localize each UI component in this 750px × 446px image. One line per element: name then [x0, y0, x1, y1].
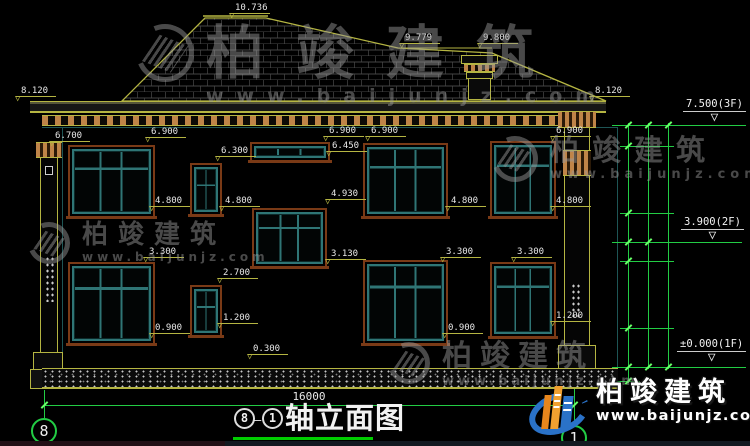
elevation-value: 0.300 — [248, 344, 288, 355]
floor-level-triangle-icon — [677, 352, 746, 363]
baijun-logo: 柏竣建筑 www.baijunjz.com — [528, 378, 750, 440]
floor-level-triangle-icon — [683, 112, 746, 123]
elevation-drawing: 16000 8 1 8 — 1 轴立面图 10.736 9.779 9.800 … — [0, 0, 750, 446]
elevation-triangle-icon — [445, 205, 450, 214]
title-bubble-8: 8 — [234, 408, 255, 429]
elevation-value: 1.200 — [218, 313, 258, 324]
elevation-marker: 6.700 — [50, 131, 90, 142]
elevation-marker: 4.800 — [220, 196, 260, 207]
elevation-triangle-icon — [511, 256, 516, 265]
elevation-triangle-icon — [145, 136, 150, 145]
floor-level-triangle-icon — [681, 230, 744, 241]
elevation-marker: 4.800 — [446, 196, 486, 207]
elevation-value: 3.300 — [512, 247, 552, 258]
elevation-triangle-icon — [247, 353, 252, 362]
dentil-band — [42, 115, 585, 126]
elevation-value: 8.120 — [16, 86, 56, 97]
elevation-marker: 4.930 — [326, 189, 366, 200]
floor-level-marker: 3.900(2F) — [681, 217, 744, 241]
floor-level-marker: 7.500(3F) — [683, 99, 746, 123]
elevation-value: 4.930 — [326, 189, 366, 200]
elevation-triangle-icon — [440, 256, 445, 265]
elevation-marker: 2.700 — [218, 268, 258, 279]
watermark-logo-icon — [382, 336, 437, 391]
baijun-logo-icon — [528, 378, 592, 440]
elevation-value: 2.700 — [218, 268, 258, 279]
elevation-triangle-icon — [365, 135, 370, 144]
elevation-value: 3.300 — [441, 247, 481, 258]
window-1f-left — [68, 262, 155, 345]
window-2f-mid — [363, 143, 448, 218]
title-bubble-1: 1 — [262, 408, 283, 429]
elevation-marker: 4.800 — [150, 196, 190, 207]
elevation-value: 6.900 — [324, 126, 364, 137]
elevation-triangle-icon — [149, 332, 154, 341]
pilaster-left-ornament — [45, 166, 53, 175]
elevation-marker: 6.900 — [146, 127, 186, 138]
elevation-marker: 6.900 — [366, 126, 406, 137]
elevation-triangle-icon — [325, 258, 330, 267]
watermark-brand: 柏竣建筑 — [206, 24, 608, 82]
elevation-triangle-icon — [217, 322, 222, 331]
elevation-triangle-icon — [149, 205, 154, 214]
watermark-url: www.baijunjz.com — [550, 167, 750, 182]
watermark: 柏竣建筑 www.baijunjz.com — [28, 222, 269, 264]
elevation-triangle-icon — [49, 140, 54, 149]
elevation-value: 4.800 — [150, 196, 190, 207]
elevation-triangle-icon — [217, 277, 222, 286]
elevation-value: 1.200 — [551, 311, 591, 322]
window-2f-left — [68, 145, 155, 218]
watermark-brand: 柏竣建筑 — [82, 222, 269, 248]
logo-url: www.baijunjz.com — [596, 408, 750, 424]
drawing-title: 轴立面图 — [285, 402, 405, 434]
elevation-marker: 10.736 — [230, 3, 270, 14]
elevation-marker: 6.900 — [324, 126, 364, 137]
watermark-brand: 柏竣建筑 — [442, 342, 639, 372]
window-2f-small — [190, 163, 222, 216]
elevation-marker: 1.200 — [551, 311, 591, 322]
elevation-value: 0.900 — [150, 323, 190, 334]
elevation-value: 6.300 — [216, 146, 256, 157]
title-underline — [233, 437, 373, 440]
window-1f-mid — [363, 260, 448, 345]
elevation-value: 6.900 — [366, 126, 406, 137]
floor-level-marker: ±0.000(1F) — [677, 339, 746, 363]
watermark-logo-icon — [485, 129, 545, 189]
elevation-value: 6.450 — [327, 141, 367, 152]
elevation-value: 6.900 — [146, 127, 186, 138]
elevation-marker: 3.300 — [512, 247, 552, 258]
level-line-3f — [612, 125, 746, 126]
elevation-marker: 8.120 — [16, 86, 56, 97]
elevation-triangle-icon — [326, 150, 331, 159]
elevation-marker: 0.900 — [150, 323, 190, 334]
watermark-logo-icon — [127, 15, 203, 91]
elevation-triangle-icon — [219, 205, 224, 214]
elevation-triangle-icon — [550, 205, 555, 214]
elevation-marker: 4.800 — [551, 196, 591, 207]
elevation-marker: 0.900 — [443, 323, 483, 334]
elevation-value: 0.900 — [443, 323, 483, 334]
elevation-value: 4.800 — [551, 196, 591, 207]
logo-brand: 柏竣建筑 — [596, 378, 750, 408]
elevation-marker: 6.300 — [216, 146, 256, 157]
elevation-value: 10.736 — [230, 3, 270, 14]
elevation-marker: 6.450 — [327, 141, 367, 152]
elevation-marker: 3.300 — [441, 247, 481, 258]
elevation-value: 4.800 — [220, 196, 260, 207]
watermark-logo-icon — [22, 216, 77, 271]
watermark: 柏竣建筑 www.baijunjz.com — [492, 136, 750, 182]
elevation-triangle-icon — [550, 320, 555, 329]
level-line-2f — [612, 242, 742, 243]
elevation-marker: 1.200 — [218, 313, 258, 324]
elevation-value: 6.700 — [50, 131, 90, 142]
elevation-value: 4.800 — [446, 196, 486, 207]
elevation-triangle-icon — [15, 95, 20, 104]
window-2f-strip — [250, 142, 330, 162]
elevation-marker: 3.130 — [326, 249, 366, 260]
watermark-brand: 柏竣建筑 — [550, 136, 750, 165]
watermark-url: www.baijunjz.com — [82, 250, 269, 264]
elevation-marker: 0.300 — [248, 344, 288, 355]
window-1f-right — [490, 262, 556, 338]
elevation-triangle-icon — [215, 155, 220, 164]
watermark: 柏竣建筑 www.baijunjz.com — [136, 24, 608, 107]
bottom-strip — [0, 441, 750, 446]
title-dash: — — [254, 413, 261, 427]
elevation-value: 3.130 — [326, 249, 366, 260]
elevation-triangle-icon — [325, 198, 330, 207]
watermark-url: www.baijunjz.com — [206, 85, 608, 107]
